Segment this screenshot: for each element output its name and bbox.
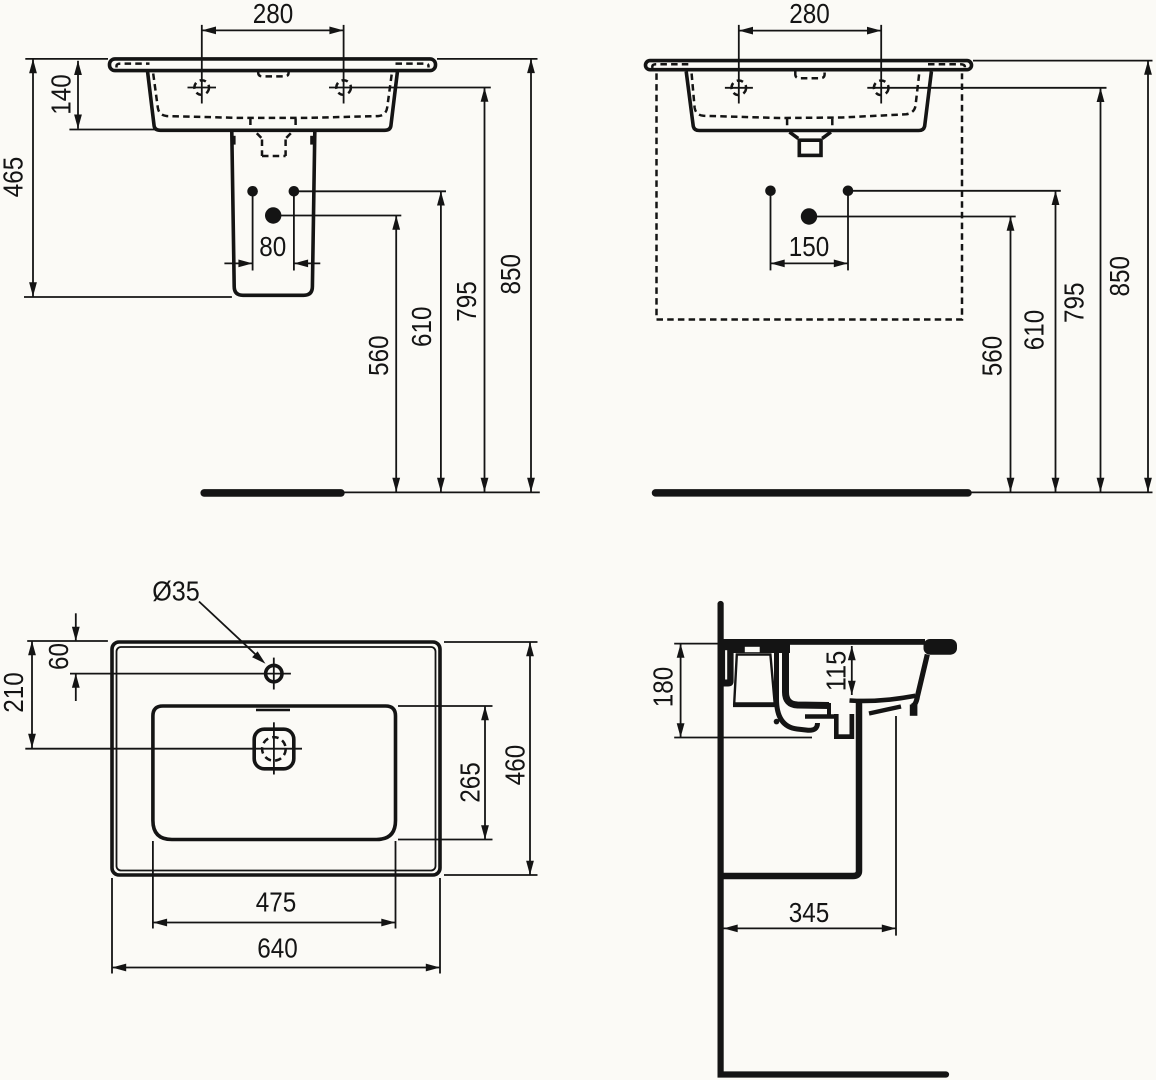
svg-text:795: 795 [1059, 283, 1090, 324]
svg-text:460: 460 [500, 745, 531, 786]
svg-text:Ø35: Ø35 [152, 575, 200, 606]
svg-text:795: 795 [451, 281, 482, 322]
svg-text:560: 560 [363, 335, 394, 376]
svg-text:640: 640 [257, 933, 298, 964]
svg-text:610: 610 [1019, 310, 1050, 351]
svg-text:150: 150 [789, 231, 830, 262]
svg-text:210: 210 [0, 672, 29, 713]
svg-text:115: 115 [821, 651, 852, 692]
svg-text:560: 560 [977, 336, 1008, 377]
svg-text:80: 80 [259, 231, 286, 262]
svg-text:345: 345 [789, 897, 830, 928]
svg-text:280: 280 [789, 0, 830, 29]
svg-text:180: 180 [647, 667, 678, 708]
svg-text:60: 60 [43, 643, 74, 670]
svg-text:850: 850 [1104, 256, 1135, 297]
svg-text:465: 465 [0, 157, 29, 198]
svg-text:280: 280 [253, 0, 294, 29]
svg-text:140: 140 [46, 74, 77, 115]
svg-text:850: 850 [495, 254, 526, 295]
svg-text:610: 610 [406, 306, 437, 347]
svg-text:475: 475 [256, 886, 297, 917]
svg-text:265: 265 [455, 762, 486, 803]
